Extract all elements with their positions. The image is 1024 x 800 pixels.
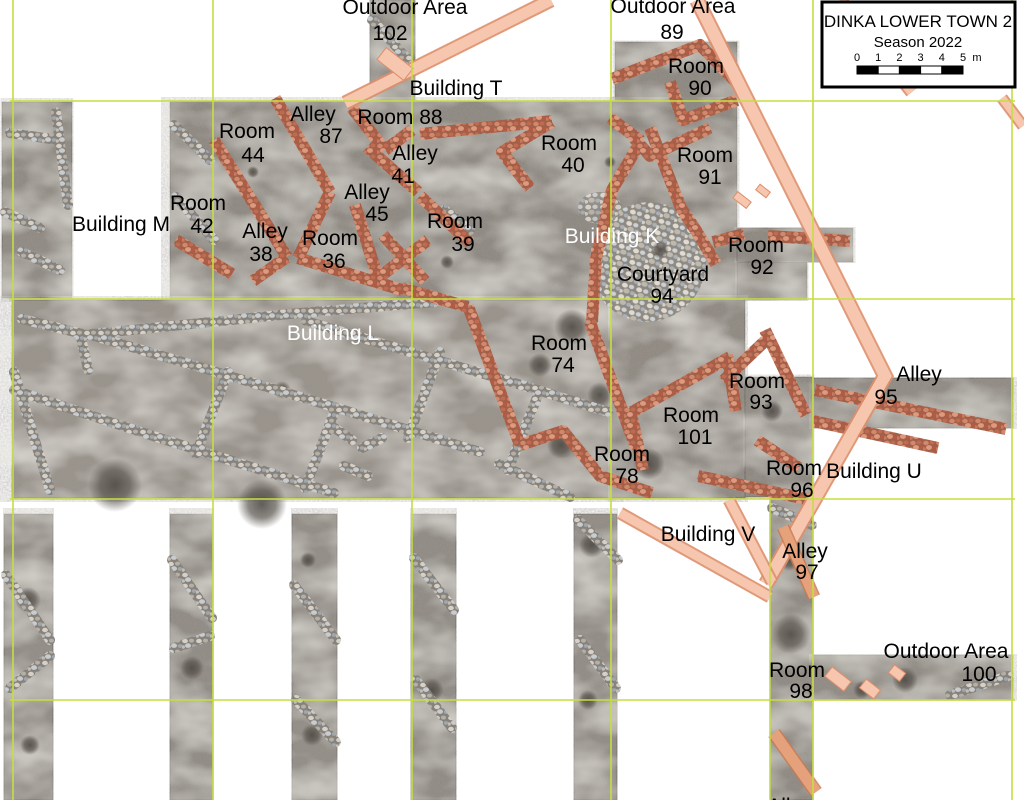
map-label: Building K [565,225,660,248]
pit [440,255,454,269]
scale-bar-segment [857,66,878,74]
scale-tick-label: 5 [960,52,966,64]
map-label: 40 [561,154,584,177]
map-label: 92 [750,256,773,279]
map-label: 41 [391,165,414,188]
scale-bar-segment [921,66,942,74]
map-label: Room 88 [357,106,442,129]
map-label: Alley [896,363,942,386]
map-label: Alley [767,795,813,800]
pit [300,552,316,568]
map-label: Building L [287,322,379,345]
map-label: 45 [365,203,388,226]
map-label: Room [594,443,650,466]
map-label: Alley [344,181,390,204]
map-label: 101 [677,426,712,449]
pit [180,656,204,680]
map-label: Outdoor Area [343,0,468,19]
map-label: 44 [241,144,265,167]
map-label: Building M [72,213,170,236]
legend-box: DINKA LOWER TOWN 2 Season 2022 012345m [822,2,1015,87]
map-label: Room [729,370,785,393]
site-plan-figure: Outdoor Area102Outdoor Area89Building TR… [0,0,1024,800]
map-label: Room [219,120,275,143]
map-label: 78 [615,465,638,488]
map-label: Outdoor Area [611,0,736,18]
map-label: 39 [451,233,474,256]
map-label: 42 [190,215,213,238]
map-label: 100 [961,663,996,686]
map-label: Outdoor Area [884,640,1009,663]
map-label: 95 [874,386,897,409]
scale-bar-segment [878,66,899,74]
map-label: Building T [409,77,502,100]
legend-title: DINKA LOWER TOWN 2 [824,12,1012,31]
pit [88,458,142,512]
map-label: Building V [661,523,756,546]
pit [237,479,287,529]
pit [528,353,552,377]
scale-tick-label: 4 [939,52,945,64]
map-label: Room [769,659,825,682]
overlay-fragment [756,184,771,198]
map-label: Room [663,404,719,427]
map-label: Room [302,227,358,250]
stone-wall [10,133,58,140]
scale-bar-segment [899,66,920,74]
scale-bar-segment [942,66,963,74]
map-label: Courtyard [617,263,709,286]
scale-tick-label: 3 [918,52,924,64]
scale-unit-label: m [972,52,981,64]
map-label: 36 [322,250,345,273]
map-label: 91 [698,166,721,189]
map-label: Room [668,55,724,78]
scale-tick-label: 0 [854,52,860,64]
pit [771,614,811,654]
map-label: Building U [826,460,922,483]
map-label: Alley [242,220,288,243]
pit [604,156,616,168]
site-plan-canvas: Outdoor Area102Outdoor Area89Building TR… [0,0,1024,800]
map-label: Room [766,457,822,480]
pit [247,166,259,178]
map-label: Room [728,234,784,257]
map-label: 102 [372,22,407,45]
map-label: Alley [782,540,828,563]
map-label: Room [170,192,226,215]
scale-tick-label: 2 [896,52,902,64]
map-label: Room [677,144,733,167]
map-label: 94 [650,285,674,308]
map-label: 89 [660,21,683,44]
map-label: 90 [688,77,711,100]
map-label: Room [427,210,483,233]
map-label: 38 [249,243,272,266]
map-label: Room [531,332,587,355]
scale-tick-label: 1 [875,52,881,64]
map-label: 93 [749,391,772,414]
legend-subtitle: Season 2022 [874,34,962,51]
map-label: 98 [789,680,812,703]
map-label: 96 [790,479,813,502]
map-label: Alley [290,103,336,126]
map-label: Room [541,132,597,155]
pit [20,735,40,755]
map-label: 74 [551,354,575,377]
map-label: 97 [795,561,818,584]
map-label: 87 [319,125,342,148]
map-label: Alley [392,142,438,165]
